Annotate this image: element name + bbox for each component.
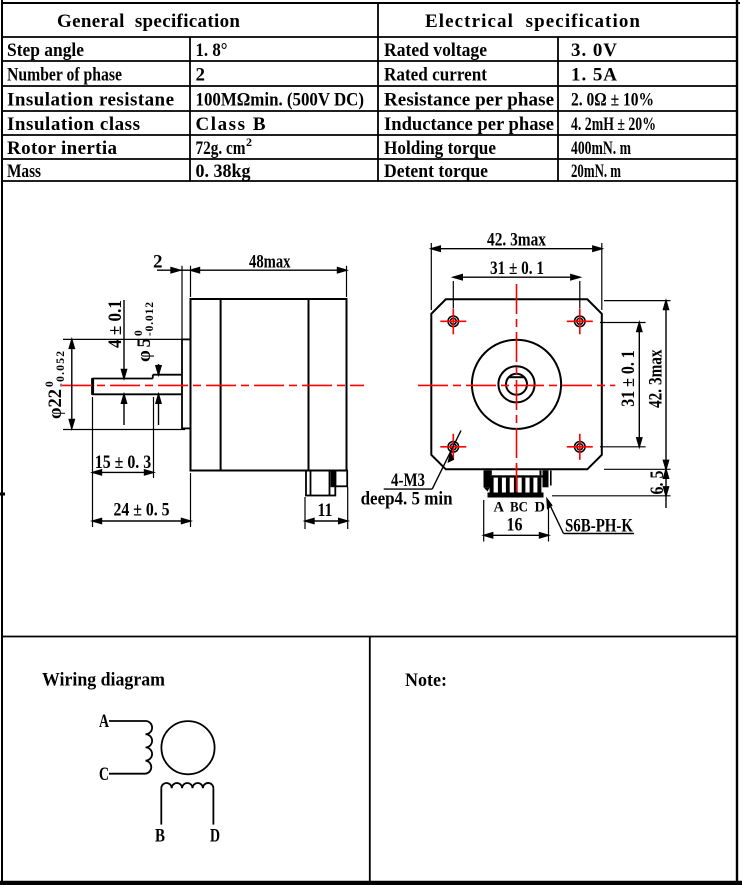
svg-text:31 ± 0. 1: 31 ± 0. 1: [618, 350, 639, 407]
svg-text:Insulation class: Insulation class: [7, 114, 140, 135]
svg-text:Mass: Mass: [7, 161, 41, 182]
svg-text:C: C: [99, 764, 109, 785]
svg-text:31 ± 0. 1: 31 ± 0. 1: [490, 258, 544, 279]
svg-text:Wiring diagram: Wiring diagram: [42, 670, 165, 691]
svg-text:Step angle: Step angle: [7, 40, 84, 61]
svg-text:Rated current: Rated current: [384, 65, 488, 86]
svg-text:2: 2: [153, 252, 163, 273]
svg-text:S6B-PH-K: S6B-PH-K: [565, 516, 633, 537]
svg-text:4. 2mH ± 20%: 4. 2mH ± 20%: [571, 114, 656, 135]
svg-text:General specification: General specification: [57, 11, 240, 32]
svg-text:-0.052: -0.052: [55, 351, 67, 387]
svg-text:-0.012: -0.012: [144, 302, 156, 336]
svg-text:Rated voltage: Rated voltage: [384, 40, 487, 61]
svg-text:φ22: φ22: [45, 389, 66, 419]
svg-text:42. 3max: 42. 3max: [487, 230, 546, 251]
svg-text:Electrical specification: Electrical specification: [425, 11, 640, 32]
svg-text:deep4. 5 min: deep4. 5 min: [361, 489, 453, 510]
svg-text:Number of phase: Number of phase: [7, 65, 122, 86]
svg-text:6. 5: 6. 5: [647, 471, 668, 495]
svg-text:72g. cm: 72g. cm: [196, 138, 246, 159]
svg-text:2: 2: [196, 65, 206, 86]
svg-text:Holding torque: Holding torque: [384, 138, 496, 159]
svg-text:0. 38kg: 0. 38kg: [196, 161, 251, 182]
svg-text:A: A: [494, 500, 505, 516]
svg-text:48max: 48max: [249, 252, 291, 273]
svg-text:3. 0V: 3. 0V: [571, 40, 617, 61]
svg-text:Inductance per phase: Inductance per phase: [384, 114, 554, 135]
svg-text:BC: BC: [510, 500, 528, 516]
svg-text:Note:: Note:: [405, 670, 447, 691]
svg-text:Rotor inertia: Rotor inertia: [7, 138, 118, 159]
svg-text:24 ± 0. 5: 24 ± 0. 5: [114, 500, 170, 521]
svg-text:1. 8°: 1. 8°: [196, 40, 228, 61]
svg-text:20mN. m: 20mN. m: [571, 161, 621, 182]
svg-text:D: D: [535, 500, 545, 516]
svg-text:100MΩmin. (500V DC): 100MΩmin. (500V DC): [196, 90, 365, 111]
svg-text:A: A: [99, 711, 109, 732]
svg-text:42. 3max: 42. 3max: [646, 349, 667, 408]
svg-text:2. 0Ω ± 10%: 2. 0Ω ± 10%: [571, 90, 654, 111]
svg-text:4 ± 0.1: 4 ± 0.1: [105, 300, 126, 348]
svg-text:B: B: [155, 826, 165, 847]
svg-text:Insulation resistane: Insulation resistane: [7, 90, 174, 111]
svg-text:Class B: Class B: [196, 114, 266, 135]
svg-text:2: 2: [246, 135, 252, 149]
svg-text:Detent torque: Detent torque: [384, 161, 488, 182]
svg-text:11: 11: [318, 500, 333, 521]
svg-text:1. 5A: 1. 5A: [571, 65, 617, 86]
svg-text:16: 16: [507, 515, 523, 536]
svg-text:400mN. m: 400mN. m: [571, 138, 631, 159]
svg-text:D: D: [210, 826, 220, 847]
svg-text:15 ± 0. 3: 15 ± 0. 3: [95, 452, 151, 473]
svg-text:Resistance per phase: Resistance per phase: [384, 90, 554, 111]
